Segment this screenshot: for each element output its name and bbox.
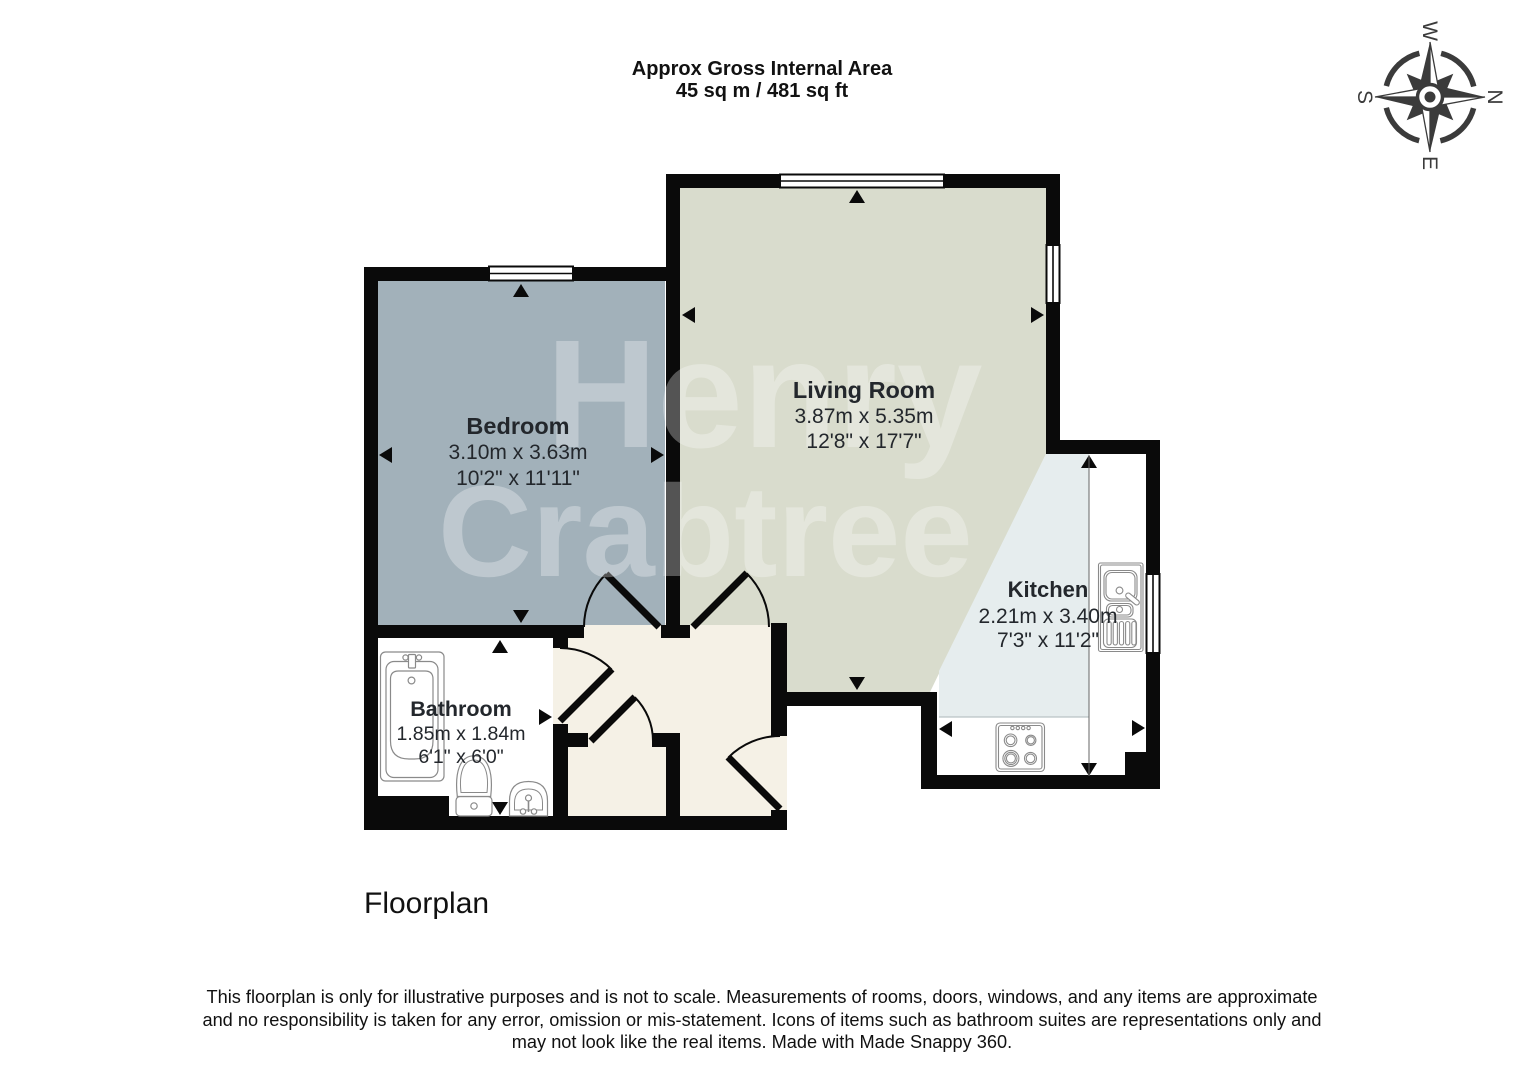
- svg-text:S: S: [1353, 90, 1376, 104]
- svg-text:W: W: [1418, 21, 1441, 41]
- svg-text:This floorplan is only for ill: This floorplan is only for illustrative …: [207, 987, 1318, 1007]
- svg-text:2.21m x 3.40m: 2.21m x 3.40m: [979, 605, 1118, 628]
- svg-text:Approx Gross Internal Area: Approx Gross Internal Area: [632, 58, 893, 80]
- svg-text:1.85m x 1.84m: 1.85m x 1.84m: [397, 723, 526, 745]
- svg-text:Bathroom: Bathroom: [410, 697, 512, 721]
- svg-text:N: N: [1483, 89, 1506, 104]
- svg-text:6'1" x 6'0": 6'1" x 6'0": [418, 746, 503, 768]
- svg-text:12'8" x 17'7": 12'8" x 17'7": [806, 430, 921, 453]
- svg-text:E: E: [1418, 156, 1441, 170]
- svg-text:3.87m x 5.35m: 3.87m x 5.35m: [795, 405, 934, 428]
- svg-text:and no responsibility is taken: and no responsibility is taken for any e…: [202, 1010, 1321, 1030]
- svg-text:7'3" x 11'2": 7'3" x 11'2": [997, 629, 1099, 652]
- svg-text:Kitchen: Kitchen: [1008, 577, 1089, 602]
- svg-text:10'2" x 11'11": 10'2" x 11'11": [456, 467, 580, 490]
- svg-text:45 sq m / 481 sq ft: 45 sq m / 481 sq ft: [676, 80, 849, 102]
- svg-text:3.10m x 3.63m: 3.10m x 3.63m: [449, 441, 588, 464]
- svg-text:Bedroom: Bedroom: [466, 413, 569, 439]
- svg-text:Floorplan: Floorplan: [364, 887, 489, 920]
- svg-text:may not look like the real ite: may not look like the real items. Made w…: [512, 1032, 1012, 1052]
- svg-text:Living Room: Living Room: [793, 377, 935, 403]
